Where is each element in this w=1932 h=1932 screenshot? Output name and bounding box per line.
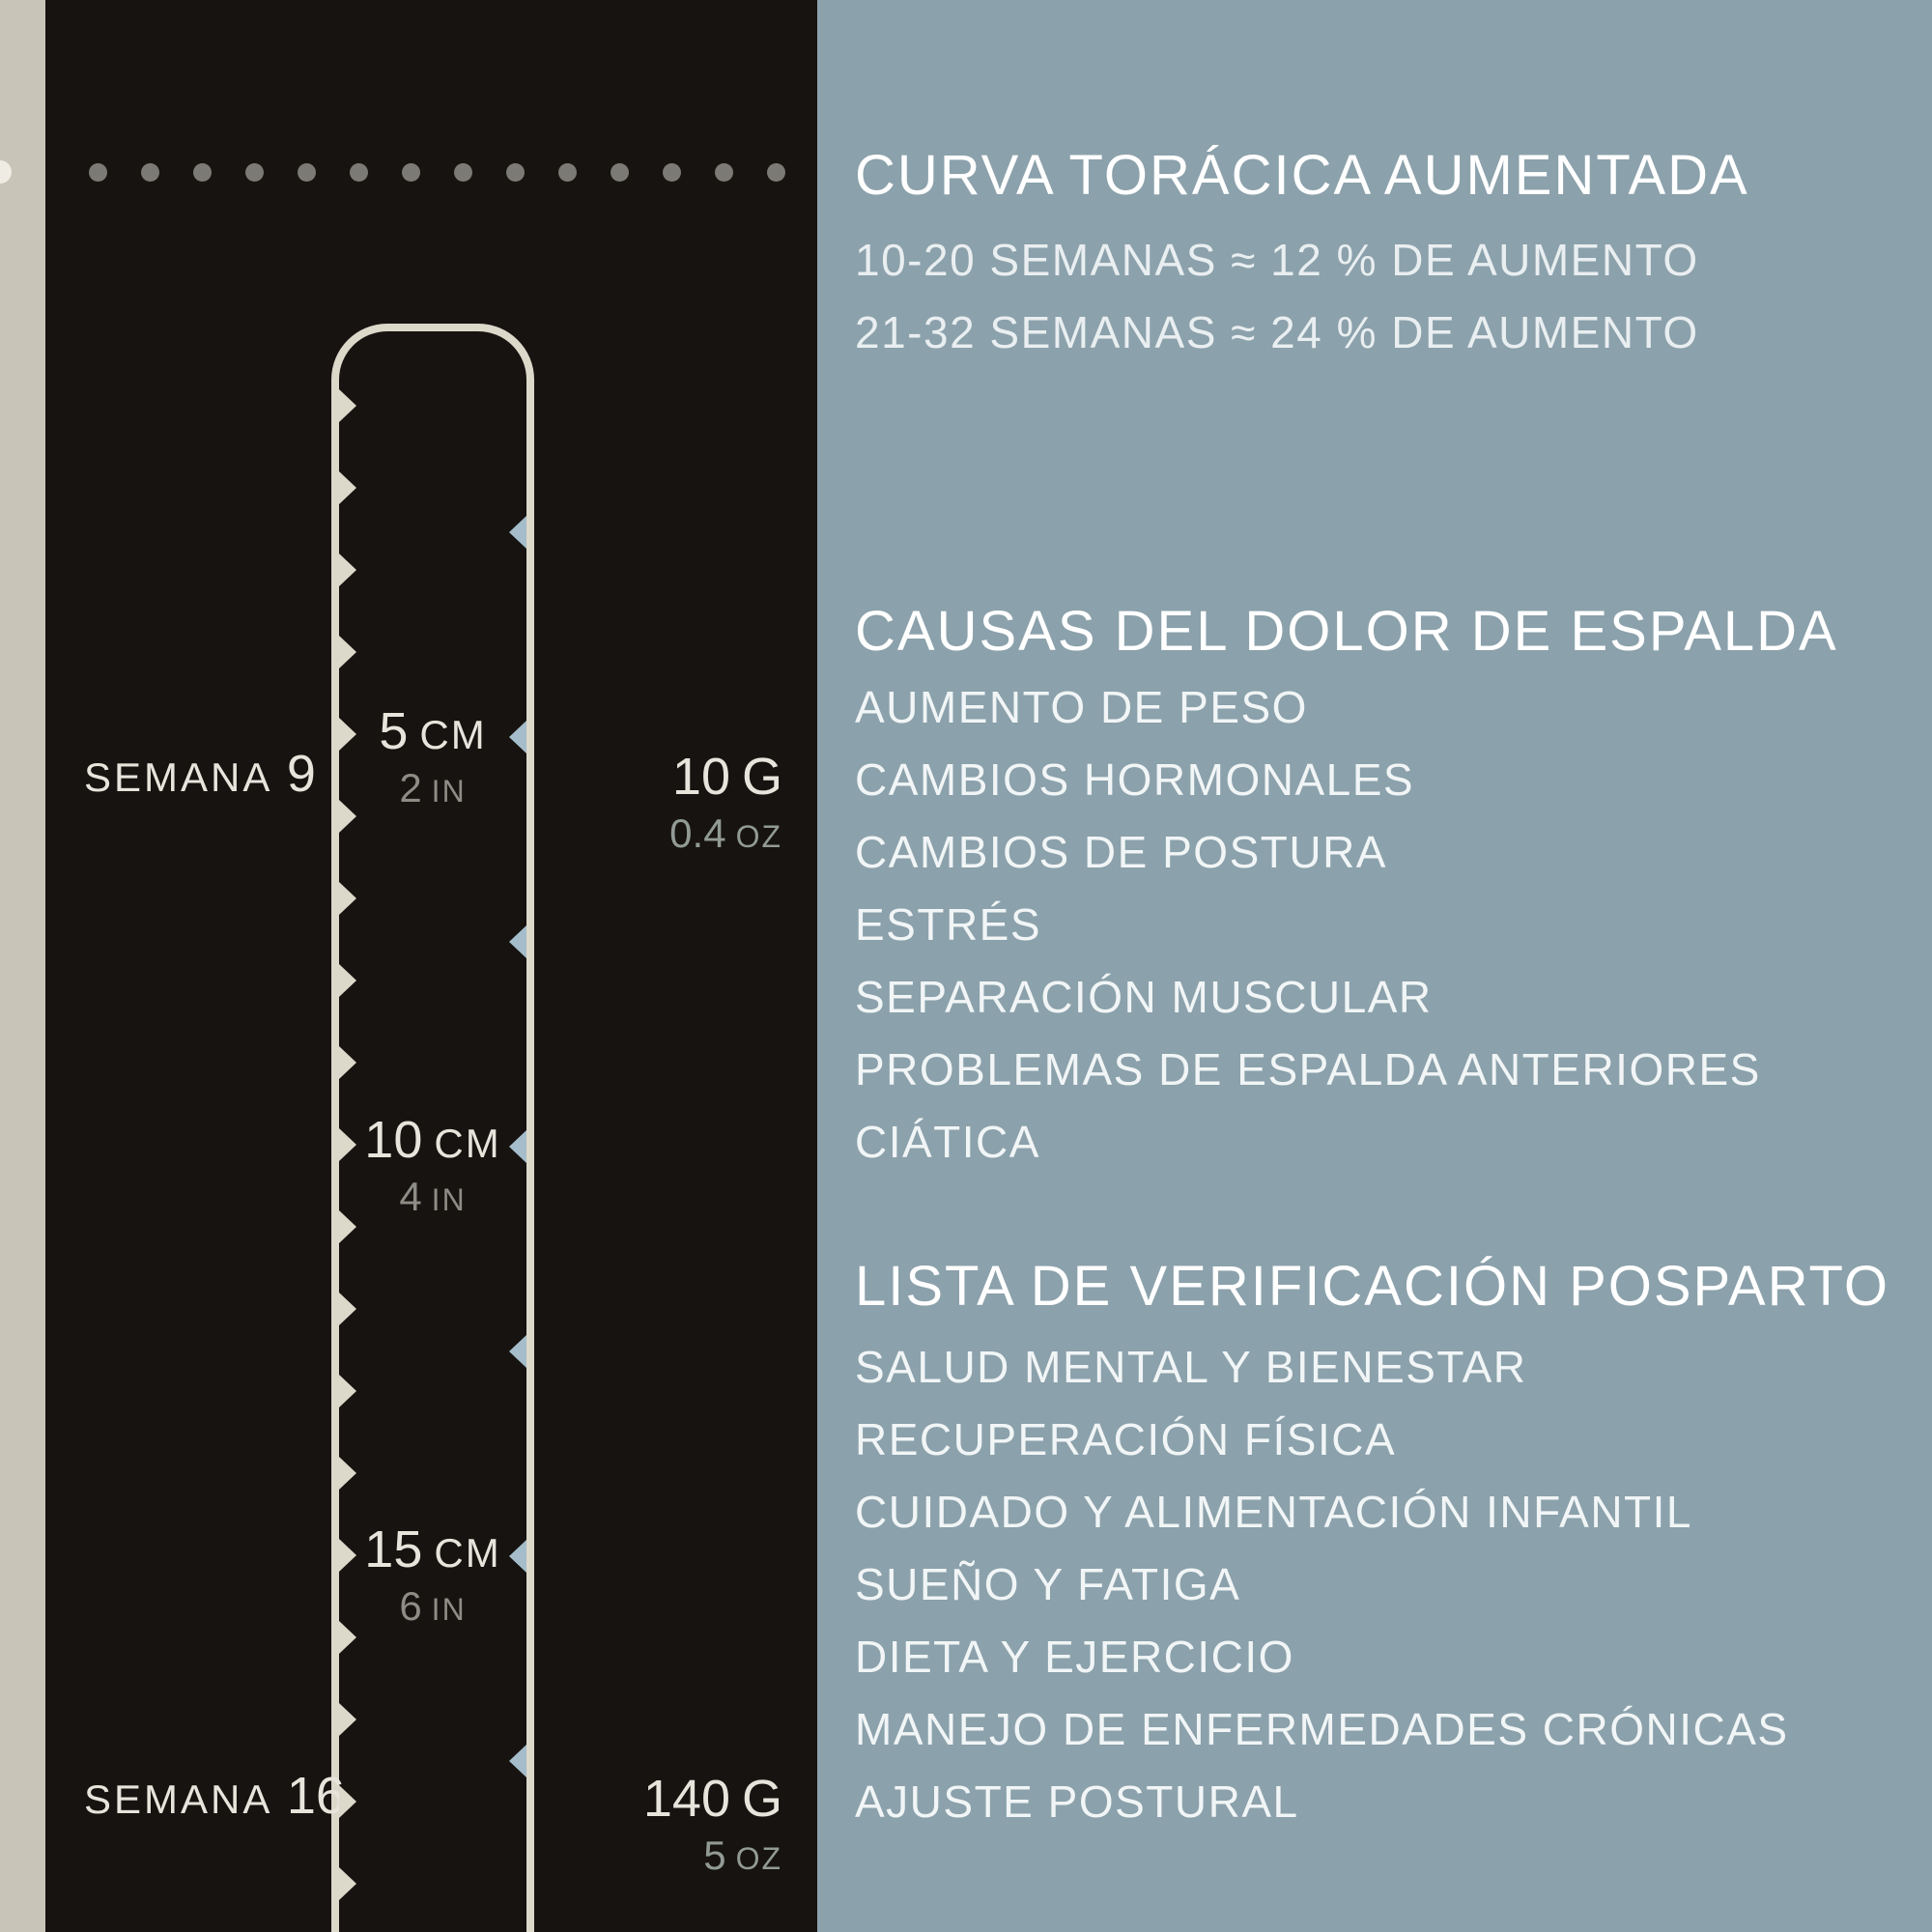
divider-dot [89, 163, 107, 182]
stat-line: 21-32 SEMANAS ≈ 24 % DE AUMENTO [855, 297, 1932, 369]
stat-line: 10-20 SEMANAS ≈ 12 % DE AUMENTO [855, 224, 1932, 297]
week-number: 16 [287, 1767, 345, 1825]
week-label: SEMANA [84, 1776, 272, 1822]
divider-dot [663, 163, 681, 182]
weight-unit: G [742, 748, 782, 806]
weight-alt-value: 5 [703, 1833, 725, 1878]
weight-140g: 140G [483, 1773, 782, 1825]
length-value: 10 [364, 1111, 422, 1169]
list-item: MANEJO DE ENFERMEDADES CRÓNICAS [855, 1693, 1932, 1766]
list-item: RECUPERACIÓN FÍSICA [855, 1404, 1932, 1476]
divider-dot [298, 163, 316, 182]
divider-dot [141, 163, 159, 182]
length-alt-unit: IN [432, 1592, 467, 1627]
length-alt-value: 4 [399, 1174, 421, 1219]
length-alt-value: 2 [399, 765, 421, 810]
length-6in: 6IN [331, 1586, 534, 1627]
list-item: CUIDADO Y ALIMENTACIÓN INFANTIL [855, 1476, 1932, 1548]
heading-curva-toracica: CURVA TORÁCICA AUMENTADA [855, 148, 1932, 204]
list-item: SUEÑO Y FATIGA [855, 1548, 1932, 1621]
divider-dot [558, 163, 577, 182]
divider-dot [715, 163, 733, 182]
length-unit: CM [434, 1530, 500, 1576]
lista-posparto-list: SALUD MENTAL Y BIENESTAR RECUPERACIÓN FÍ… [855, 1331, 1932, 1838]
causas-dolor-list: AUMENTO DE PESO CAMBIOS HORMONALES CAMBI… [855, 671, 1932, 1179]
left-rail [0, 0, 45, 1932]
length-5cm: 5CM [331, 705, 534, 757]
list-item: ESTRÉS [855, 889, 1932, 961]
list-item: SALUD MENTAL Y BIENESTAR [855, 1331, 1932, 1404]
length-unit: CM [419, 712, 486, 757]
weight-unit: G [742, 1770, 782, 1828]
divider-dot [402, 163, 420, 182]
curva-toracica-stats: 10-20 SEMANAS ≈ 12 % DE AUMENTO 21-32 SE… [855, 224, 1932, 369]
list-item: DIETA Y EJERCICIO [855, 1621, 1932, 1693]
list-item: AUMENTO DE PESO [855, 671, 1932, 744]
length-alt-unit: IN [432, 1182, 467, 1217]
length-4in: 4IN [331, 1177, 534, 1217]
week-9-marker: SEMANA 9 [84, 748, 316, 800]
divider-dot [350, 163, 368, 182]
weight-alt-value: 0.4 [669, 810, 725, 856]
divider-dot [245, 163, 264, 182]
list-item: CAMBIOS DE POSTURA [855, 816, 1932, 889]
weight-alt-unit: OZ [736, 1841, 782, 1876]
heading-causas-dolor: CAUSAS DEL DOLOR DE ESPALDA [855, 604, 1932, 660]
length-alt-value: 6 [399, 1583, 421, 1629]
week-number: 9 [287, 745, 316, 803]
list-item: SEPARACIÓN MUSCULAR [855, 961, 1932, 1034]
weight-alt-unit: OZ [736, 819, 782, 854]
week-16-marker: SEMANA 16 [84, 1770, 345, 1822]
week-label: SEMANA [84, 754, 272, 800]
length-alt-unit: IN [432, 774, 467, 809]
list-item: CIÁTICA [855, 1106, 1932, 1179]
weight-value: 140 [643, 1770, 730, 1828]
weight-04oz: 0.4OZ [483, 813, 782, 854]
length-15cm: 15CM [331, 1523, 534, 1576]
divider-dot [767, 163, 785, 182]
list-item: CAMBIOS HORMONALES [855, 744, 1932, 816]
divider-dot [506, 163, 525, 182]
list-item: AJUSTE POSTURAL [855, 1766, 1932, 1838]
length-value: 15 [364, 1520, 422, 1578]
list-item: PROBLEMAS DE ESPALDA ANTERIORES [855, 1034, 1932, 1106]
divider-dot [611, 163, 629, 182]
divider-dot [193, 163, 212, 182]
weight-value: 10 [672, 748, 730, 806]
weight-5oz: 5OZ [483, 1835, 782, 1876]
length-unit: CM [434, 1121, 500, 1166]
divider-dot [454, 163, 472, 182]
length-10cm: 10CM [331, 1114, 534, 1166]
length-value: 5 [379, 702, 408, 760]
heading-lista-posparto: LISTA DE VERIFICACIÓN POSPARTO [855, 1259, 1932, 1315]
weight-10g: 10G [483, 751, 782, 803]
pregnancy-infographic: SEMANA 9 5CM 2IN 10G 0.4OZ 10CM 4IN 15CM… [0, 0, 1932, 1932]
